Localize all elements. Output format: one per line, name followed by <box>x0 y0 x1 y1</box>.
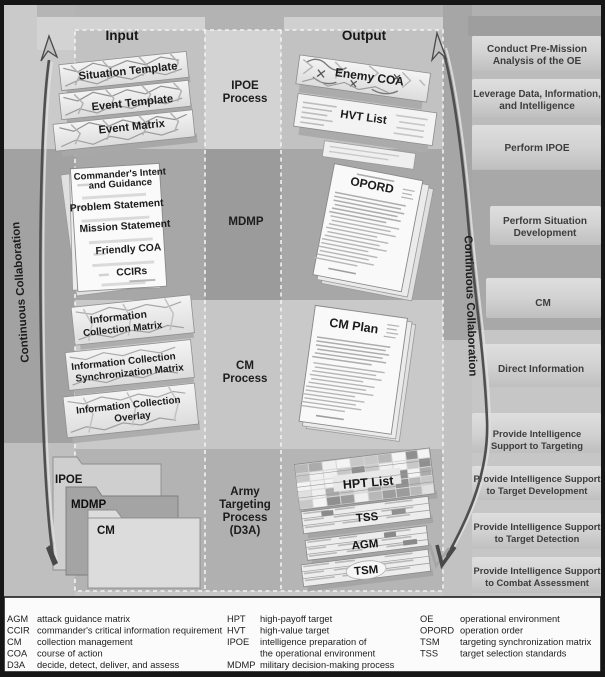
svg-text:target selection standards: target selection standards <box>460 649 567 659</box>
svg-text:IPOE: IPOE <box>231 80 259 92</box>
svg-text:to Target Detection: to Target Detection <box>495 533 580 544</box>
svg-text:CM: CM <box>7 637 21 647</box>
svg-text:AGM: AGM <box>351 538 379 552</box>
svg-text:operation order: operation order <box>460 626 523 636</box>
svg-text:decide, detect, deliver, and a: decide, detect, deliver, and assess <box>37 660 179 670</box>
svg-text:collection management: collection management <box>37 637 133 647</box>
svg-text:Targeting: Targeting <box>219 499 271 511</box>
svg-text:Input: Input <box>106 28 139 43</box>
svg-text:intelligence preparation of: intelligence preparation of <box>260 637 367 647</box>
svg-text:and Intelligence: and Intelligence <box>499 101 575 112</box>
svg-text:to Combat Assessment: to Combat Assessment <box>485 577 589 588</box>
svg-text:Direct Information: Direct Information <box>498 364 584 375</box>
svg-text:HVT: HVT <box>227 626 246 636</box>
svg-text:Conduct Pre-Mission: Conduct Pre-Mission <box>487 44 587 55</box>
svg-text:course of action: course of action <box>37 649 103 659</box>
svg-text:COA: COA <box>7 649 28 659</box>
svg-text:AGM: AGM <box>7 614 28 624</box>
svg-text:military decision-making proce: military decision-making process <box>260 660 395 670</box>
svg-text:CCIR: CCIR <box>7 626 30 636</box>
svg-text:high-payoff target: high-payoff target <box>260 614 333 624</box>
svg-text:MDMP: MDMP <box>227 660 255 670</box>
svg-text:Provide Intelligence Support: Provide Intelligence Support <box>473 565 600 576</box>
svg-text:(D3A): (D3A) <box>230 525 261 537</box>
svg-text:Provide Intelligence Support: Provide Intelligence Support <box>473 521 600 532</box>
svg-text:HPT: HPT <box>227 614 246 624</box>
svg-text:Development: Development <box>514 228 577 239</box>
svg-text:commander's critical informati: commander's critical information require… <box>37 626 223 636</box>
svg-text:Army: Army <box>230 486 260 498</box>
svg-text:MDMP: MDMP <box>228 216 263 228</box>
svg-text:attack guidance matrix: attack guidance matrix <box>37 614 130 624</box>
svg-text:the operational environment: the operational environment <box>260 649 376 659</box>
svg-text:MDMP: MDMP <box>71 499 106 511</box>
svg-text:OPORD: OPORD <box>420 626 454 636</box>
svg-text:targeting synchronization matr: targeting synchronization matrix <box>460 637 592 647</box>
svg-text:CM: CM <box>97 525 115 537</box>
svg-text:CM: CM <box>236 360 254 372</box>
svg-text:TSS: TSS <box>420 649 438 659</box>
svg-text:Output: Output <box>342 28 387 43</box>
svg-text:Leverage Data, Information,: Leverage Data, Information, <box>473 89 601 100</box>
svg-text:Process: Process <box>223 373 268 385</box>
svg-text:high-value target: high-value target <box>260 626 330 636</box>
svg-text:Provide Intelligence: Provide Intelligence <box>493 428 582 439</box>
svg-text:Provide Intelligence Support: Provide Intelligence Support <box>473 473 600 484</box>
svg-text:Perform Situation: Perform Situation <box>503 216 587 227</box>
svg-text:operational environment: operational environment <box>460 614 560 624</box>
svg-text:TSM: TSM <box>354 564 379 578</box>
svg-text:Analysis of the OE: Analysis of the OE <box>493 56 582 67</box>
svg-text:IPOE: IPOE <box>55 474 83 486</box>
svg-text:IPOE: IPOE <box>227 637 249 647</box>
svg-text:OE: OE <box>420 614 433 624</box>
svg-text:CCIRs: CCIRs <box>116 266 148 279</box>
svg-text:Perform IPOE: Perform IPOE <box>504 143 569 154</box>
svg-text:Process: Process <box>223 93 268 105</box>
svg-text:D3A: D3A <box>7 660 26 670</box>
svg-text:to Target Development: to Target Development <box>487 485 588 496</box>
svg-text:TSS: TSS <box>356 511 380 525</box>
svg-text:Process: Process <box>223 512 268 524</box>
svg-text:CM: CM <box>535 298 551 309</box>
svg-text:TSM: TSM <box>420 637 440 647</box>
svg-text:Support to Targeting: Support to Targeting <box>491 440 583 451</box>
